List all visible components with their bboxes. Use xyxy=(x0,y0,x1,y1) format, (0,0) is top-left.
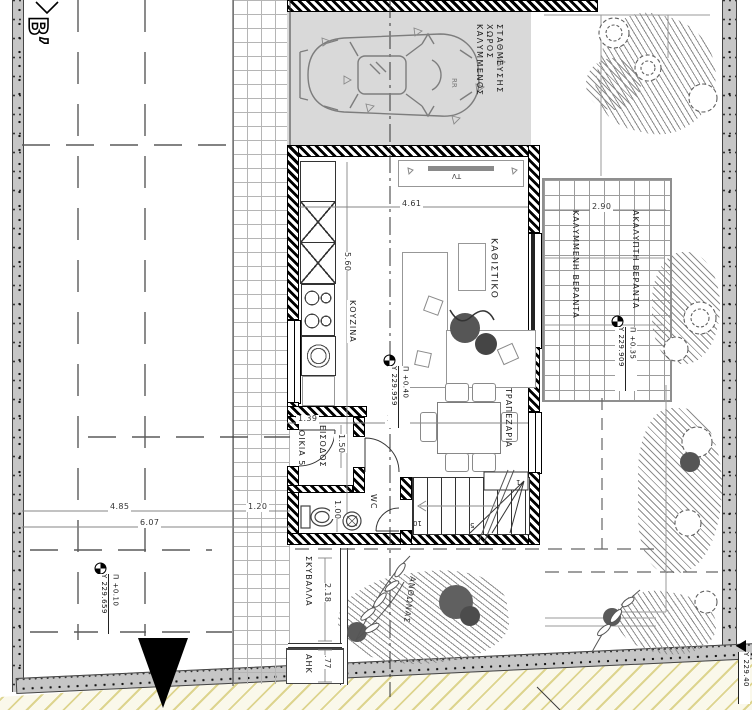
stair-number-10: 10 xyxy=(413,519,422,527)
level-text-living: Π +0.40 Υ 229.959 xyxy=(388,366,410,428)
dining-chair xyxy=(420,412,437,442)
top-boundary-wall-hatched xyxy=(287,0,598,12)
tv-screen xyxy=(428,166,494,171)
room-label-dining: ΤΡΑΠΕΖΑΡΙΑ xyxy=(503,388,513,448)
tall-cabinet xyxy=(300,201,336,243)
dim-wc-width: 1.00 xyxy=(330,500,343,519)
room-label-kitchen: ΚΟΥΖΙΝΑ xyxy=(347,300,357,343)
planting-bed xyxy=(638,408,722,573)
dining-chair xyxy=(472,453,496,472)
dining-chair xyxy=(445,453,469,472)
wall-lobby-dining-b xyxy=(353,467,365,493)
section-marker-label: Β’ xyxy=(22,16,52,46)
stair-number-1: 1 xyxy=(516,478,520,486)
dim-utility-height: .77 xyxy=(320,655,333,669)
label-uncovered-veranda: ΑΚΑΛΥΠΤΗ ΒΕΡΑΝΤΑ xyxy=(630,210,640,322)
label-covered-veranda: ΚΑΛΥΜΜΕΝΗ ΒΕΡΑΝΤΑ xyxy=(570,210,580,325)
entrance-arrow xyxy=(138,638,188,708)
dim-yard-b: 6.07 xyxy=(138,519,161,528)
wall-house-right-upper xyxy=(528,145,540,233)
dim-walkway-width: 1.20 xyxy=(246,503,269,512)
tiled-walkway xyxy=(233,0,290,684)
dining-chair xyxy=(472,383,496,402)
level-value: Π +0.40 xyxy=(398,366,410,428)
wall-lobby-wc xyxy=(287,485,353,493)
dim-yard-a: 4.85 xyxy=(108,503,131,512)
dining-chair xyxy=(445,383,469,402)
window-kitchen xyxy=(287,320,301,404)
wc-sink xyxy=(343,512,361,530)
level-text-veranda: Π +0.35 Υ 229.909 xyxy=(615,327,637,391)
dim-kitchen-height: 5.60 xyxy=(340,252,353,271)
stair-number-5: 5 xyxy=(470,521,474,529)
boundary-wall-right xyxy=(722,0,737,650)
level-elevation: Υ 229.659 xyxy=(98,574,108,634)
dim-entry-width: 1.39 xyxy=(296,415,319,424)
dim-living-width: 4.61 xyxy=(400,200,423,209)
label-garbage: ΣΚΥΒΑΛΛΑ xyxy=(303,556,313,607)
base-cabinet xyxy=(302,376,335,406)
wall-house-top xyxy=(287,145,540,157)
sofa-seat-section xyxy=(446,330,536,388)
window-dining xyxy=(528,412,542,474)
wall-stairwell-b xyxy=(400,530,412,545)
side-table xyxy=(458,243,486,291)
level-elevation: Υ 229.909 xyxy=(615,327,625,391)
room-label-wc: WC xyxy=(368,494,378,510)
tall-cabinet xyxy=(300,242,336,284)
level-text-yard: Π +0.10 Υ 229.659 xyxy=(98,574,120,634)
wall-house-left-upper xyxy=(287,145,299,320)
label-utility: ΑΗΚ xyxy=(303,654,313,674)
room-label-living: ΚΑΘΙΣΤΙΚΟ xyxy=(487,238,498,299)
level-text-road: Υ 229.40 xyxy=(738,652,750,704)
planting-bed xyxy=(586,58,641,110)
dining-table xyxy=(437,402,501,454)
fridge xyxy=(300,161,336,202)
section-arrow-icon xyxy=(36,2,58,13)
parking-label: ΚΑΛΥΜΜΕΝΟΣ ΧΩΡΟΣ ΣΤΑΘΜΕΥΣΗΣ xyxy=(474,24,504,119)
level-value: Π +0.10 xyxy=(108,574,120,634)
sink-unit xyxy=(301,336,336,376)
tv-label: TV xyxy=(452,172,461,180)
cooktop xyxy=(301,284,335,336)
dim-garbage-height: 2.18 xyxy=(320,583,333,602)
dim-entry-depth: 1.50 xyxy=(334,434,347,453)
level-elevation: Υ 229.959 xyxy=(388,366,398,428)
room-label-house-number: ΟΙΚΙΑ 5 xyxy=(296,430,306,466)
wall-lobby-dining-a xyxy=(353,417,365,437)
planting-bed xyxy=(652,252,720,364)
boundary-wall-left xyxy=(12,0,24,692)
level-elevation: Υ 229.40 xyxy=(738,652,750,704)
dim-veranda-width: 2.90 xyxy=(590,203,613,212)
utility-box xyxy=(286,648,344,684)
room-label-entrance: ΕΙΣΟΔΟΣ xyxy=(317,425,327,468)
toilet xyxy=(301,506,333,528)
floor-plan-drawing: RR xyxy=(0,0,752,710)
level-value: Π +0.35 xyxy=(625,327,637,391)
door-swings xyxy=(299,430,399,531)
wall-stairwell-a xyxy=(400,477,412,500)
